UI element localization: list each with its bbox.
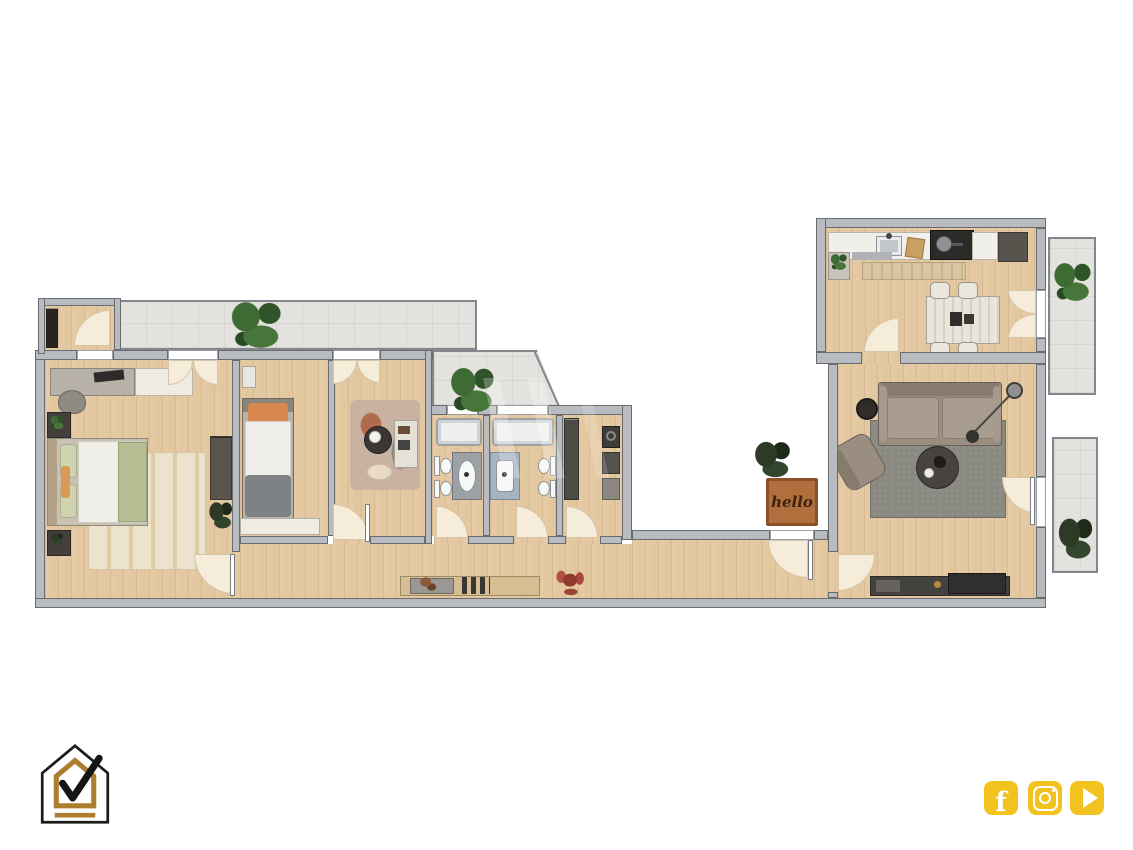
storage-shelf	[46, 308, 58, 348]
youtube-icon[interactable]	[1070, 781, 1104, 815]
facebook-glyph: f	[995, 789, 1007, 816]
wall	[828, 364, 838, 552]
wall	[35, 598, 1046, 608]
entrance-threshold	[770, 530, 814, 540]
wall	[814, 530, 828, 540]
sofa-armrest	[879, 386, 887, 442]
refrigerator	[998, 232, 1028, 262]
wall	[816, 218, 826, 352]
plant-icon	[1050, 258, 1096, 306]
wall	[232, 360, 240, 552]
pan-handle	[951, 243, 963, 246]
cutting-board	[905, 237, 926, 259]
wall	[113, 350, 168, 360]
watermark	[452, 378, 632, 478]
sofa-cushion	[887, 397, 939, 439]
single-bed	[242, 398, 294, 526]
balcony-top	[118, 300, 477, 350]
office-chair	[58, 390, 86, 414]
plant-icon	[226, 296, 288, 354]
balcony-french-door	[333, 350, 380, 360]
floor-plan-render: hello f	[0, 0, 1133, 850]
wall	[1036, 527, 1046, 598]
floor-lamp-base	[966, 430, 979, 443]
facebook-icon[interactable]: f	[984, 781, 1018, 815]
centerpiece	[964, 314, 974, 324]
decor-bowl	[934, 581, 941, 588]
wall	[425, 350, 432, 544]
table-plate	[924, 468, 934, 478]
entrance-plant-icon	[750, 436, 796, 482]
balcony-door-sill	[1036, 477, 1046, 527]
desk-items	[398, 426, 410, 434]
double-bed	[47, 438, 148, 526]
kitchen-counter	[972, 232, 998, 260]
dining-chair	[958, 282, 978, 299]
desk-items	[398, 440, 410, 450]
blanket	[245, 475, 291, 517]
laundry-shelf	[602, 478, 620, 500]
plant-icon	[1054, 512, 1098, 564]
centerpiece	[950, 312, 962, 326]
instagram-icon[interactable]	[1028, 781, 1062, 815]
house-check-logo	[36, 740, 114, 828]
kitchen-rug	[862, 262, 966, 280]
throw-blanket	[118, 442, 147, 522]
wall	[38, 298, 121, 306]
wardrobe	[210, 436, 232, 500]
balcony-french-door	[168, 350, 218, 360]
door-threshold	[862, 352, 900, 364]
instagram-dot	[1052, 789, 1055, 792]
dining-table	[926, 296, 1000, 344]
radiator	[242, 366, 256, 388]
dining-chair	[930, 282, 950, 299]
wall	[816, 218, 1046, 228]
doormat: hello	[766, 478, 818, 526]
door-leaf	[365, 504, 370, 542]
wall	[600, 536, 622, 544]
dresser	[240, 518, 320, 535]
sofa-back	[882, 383, 999, 396]
house-check-logo-svg	[36, 740, 114, 828]
plant-icon	[49, 531, 65, 547]
plant-icon	[49, 414, 66, 431]
youtube-play-triangle	[1083, 788, 1098, 808]
wall	[35, 350, 45, 608]
wall	[370, 536, 425, 544]
accent-pillow	[248, 403, 288, 423]
headboard	[48, 439, 57, 525]
door-leaf	[1030, 477, 1035, 525]
wall	[816, 352, 862, 364]
toilet-bowl	[440, 458, 452, 474]
wall	[828, 592, 838, 598]
bidet-bowl	[538, 481, 550, 496]
wall	[1036, 338, 1046, 352]
instagram-frame	[1033, 786, 1058, 811]
red-plant-icon	[548, 560, 592, 602]
table-plate	[369, 431, 381, 443]
door-sill	[77, 350, 113, 360]
wall	[548, 536, 566, 544]
tv	[948, 573, 1006, 594]
balcony-door-sill	[1036, 290, 1046, 338]
tv-unit-box	[876, 580, 900, 592]
books	[462, 577, 490, 594]
counter-plant-icon	[829, 252, 849, 272]
instagram-lens	[1039, 792, 1051, 804]
table-decor	[934, 456, 946, 468]
wall	[240, 536, 328, 544]
doormat-text: hello	[769, 481, 815, 523]
faucet	[886, 233, 892, 239]
sofa	[878, 382, 1002, 446]
wall	[632, 530, 770, 540]
wall	[1036, 228, 1046, 290]
wall	[38, 298, 45, 354]
wall	[468, 536, 514, 544]
bidet-bowl	[440, 481, 452, 496]
door-leaf	[230, 554, 235, 596]
floor-lamp-head	[1006, 382, 1023, 399]
kitchen-mat	[852, 252, 892, 260]
wall	[114, 298, 121, 350]
side-table	[856, 398, 878, 420]
entrance-door-leaf	[808, 540, 813, 580]
wall	[1036, 364, 1046, 477]
sofa-armrest	[993, 386, 1001, 442]
accent-pillow	[61, 466, 70, 498]
wall	[900, 352, 1046, 364]
pan	[936, 236, 952, 252]
